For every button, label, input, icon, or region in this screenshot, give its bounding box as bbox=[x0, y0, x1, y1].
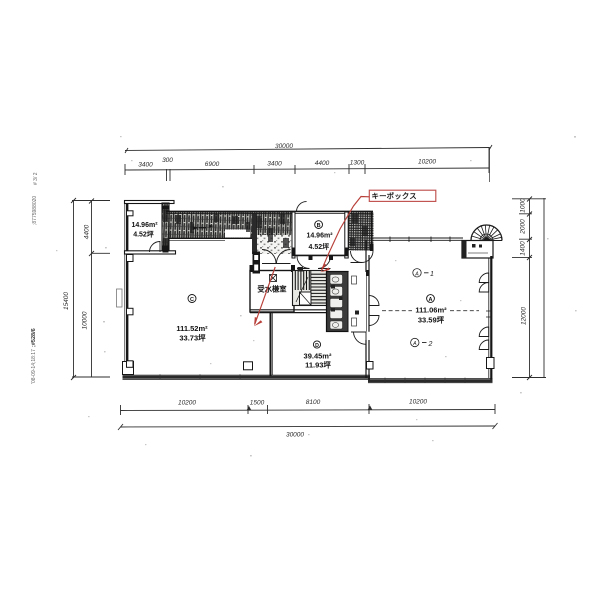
svg-text:111.06m²: 111.06m² bbox=[415, 306, 447, 315]
svg-text:33.59坪: 33.59坪 bbox=[418, 315, 445, 325]
svg-text:4400: 4400 bbox=[315, 160, 330, 167]
svg-text:33.73坪: 33.73坪 bbox=[179, 333, 206, 343]
svg-text:1300: 1300 bbox=[350, 160, 365, 167]
svg-text:D: D bbox=[315, 343, 319, 349]
svg-text:300: 300 bbox=[162, 157, 173, 164]
svg-text:;#528/6: ;#528/6 bbox=[31, 328, 37, 347]
svg-text:C: C bbox=[190, 297, 194, 303]
svg-text:'08-09-14;18:17: '08-09-14;18:17 bbox=[31, 349, 37, 384]
svg-text:14.96m²: 14.96m² bbox=[131, 222, 158, 229]
svg-text:6900: 6900 bbox=[205, 161, 220, 168]
svg-text:30000: 30000 bbox=[275, 143, 294, 150]
svg-text:1000: 1000 bbox=[520, 198, 527, 213]
svg-text:39.45m²: 39.45m² bbox=[304, 352, 332, 361]
svg-text:受水槏室: 受水槏室 bbox=[257, 284, 287, 293]
svg-text:2: 2 bbox=[428, 341, 433, 348]
svg-text:3400: 3400 bbox=[138, 162, 153, 169]
svg-text:10200: 10200 bbox=[178, 400, 196, 407]
svg-text:4400: 4400 bbox=[84, 224, 91, 239]
svg-text:10200: 10200 bbox=[409, 399, 427, 406]
svg-text:4.52坪: 4.52坪 bbox=[308, 242, 329, 251]
svg-text:B: B bbox=[317, 223, 321, 229]
svg-text:# 3/ 2: # 3/ 2 bbox=[33, 172, 39, 185]
svg-text:2000: 2000 bbox=[520, 219, 527, 235]
svg-text:3400: 3400 bbox=[267, 161, 282, 168]
svg-text:10000: 10000 bbox=[82, 311, 89, 329]
svg-text:1: 1 bbox=[430, 271, 434, 278]
svg-text:A: A bbox=[429, 297, 433, 303]
svg-text:キーボックス: キーボックス bbox=[372, 192, 417, 201]
svg-text:1500: 1500 bbox=[250, 400, 265, 407]
svg-text:30000: 30000 bbox=[286, 432, 304, 439]
svg-text:8100: 8100 bbox=[306, 399, 321, 406]
svg-text:12000: 12000 bbox=[521, 307, 528, 325]
svg-text:A: A bbox=[414, 271, 419, 277]
svg-text:10200: 10200 bbox=[418, 159, 436, 166]
svg-text:;8775988020: ;8775988020 bbox=[32, 196, 38, 225]
svg-text:14.96m²: 14.96m² bbox=[306, 233, 333, 240]
svg-text:1400: 1400 bbox=[520, 241, 527, 256]
svg-text:15400: 15400 bbox=[63, 292, 70, 310]
svg-text:111.52m²: 111.52m² bbox=[176, 324, 208, 333]
svg-text:A: A bbox=[412, 341, 417, 347]
svg-text:11.93坪: 11.93坪 bbox=[305, 360, 331, 370]
svg-text:4.52坪: 4.52坪 bbox=[133, 230, 154, 239]
